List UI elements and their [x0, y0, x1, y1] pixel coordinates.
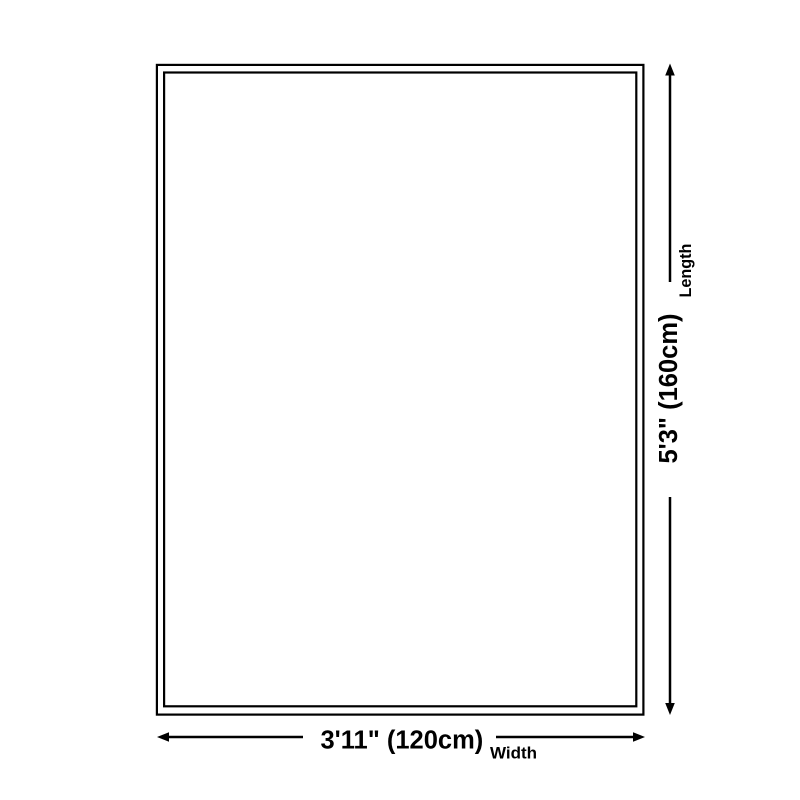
svg-text:5'3" (160cm): 5'3" (160cm)	[655, 314, 683, 464]
svg-text:3'11" (120cm): 3'11" (120cm)	[321, 726, 484, 754]
svg-text:Length: Length	[677, 244, 695, 298]
svg-text:Width: Width	[490, 743, 537, 762]
